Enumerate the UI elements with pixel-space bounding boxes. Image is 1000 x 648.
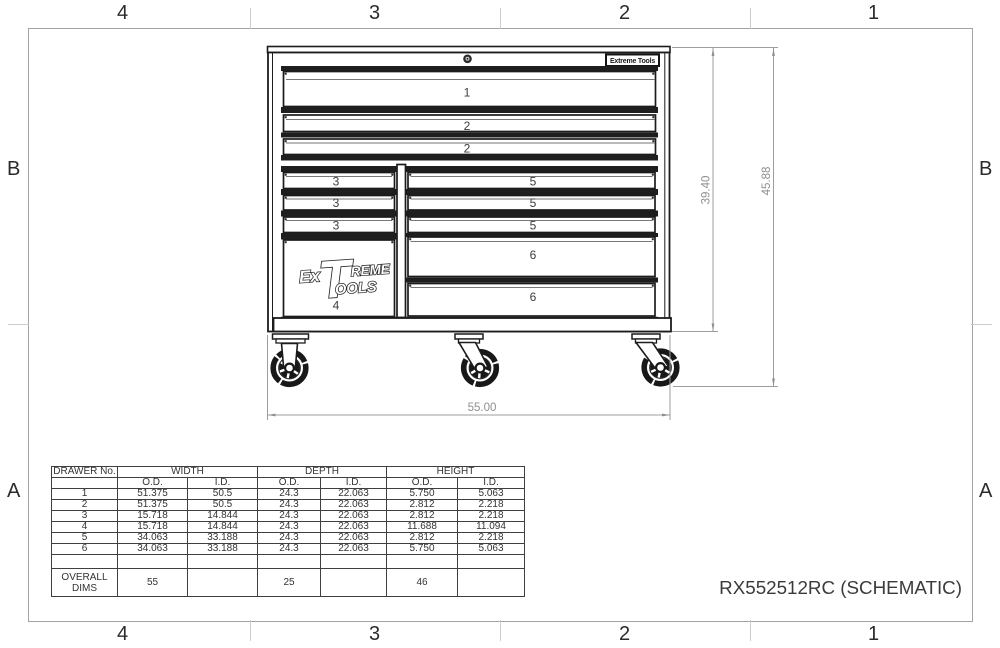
svg-text:55.00: 55.00 (468, 402, 497, 414)
svg-text:Extreme Tools: Extreme Tools (610, 58, 655, 65)
svg-text:OOLS: OOLS (334, 279, 377, 298)
svg-text:3: 3 (333, 196, 340, 210)
svg-text:6: 6 (530, 248, 537, 262)
svg-text:6: 6 (530, 290, 537, 304)
svg-text:39.40: 39.40 (701, 176, 713, 205)
svg-text:5: 5 (530, 196, 537, 210)
svg-text:2: 2 (464, 119, 471, 133)
svg-text:REME: REME (350, 261, 391, 279)
svg-text:5: 5 (530, 219, 537, 233)
svg-text:45.88: 45.88 (761, 167, 773, 196)
svg-text:1: 1 (464, 86, 471, 100)
svg-text:5: 5 (530, 175, 537, 189)
svg-text:3: 3 (333, 219, 340, 233)
svg-text:2: 2 (464, 142, 471, 156)
svg-text:3: 3 (333, 175, 340, 189)
